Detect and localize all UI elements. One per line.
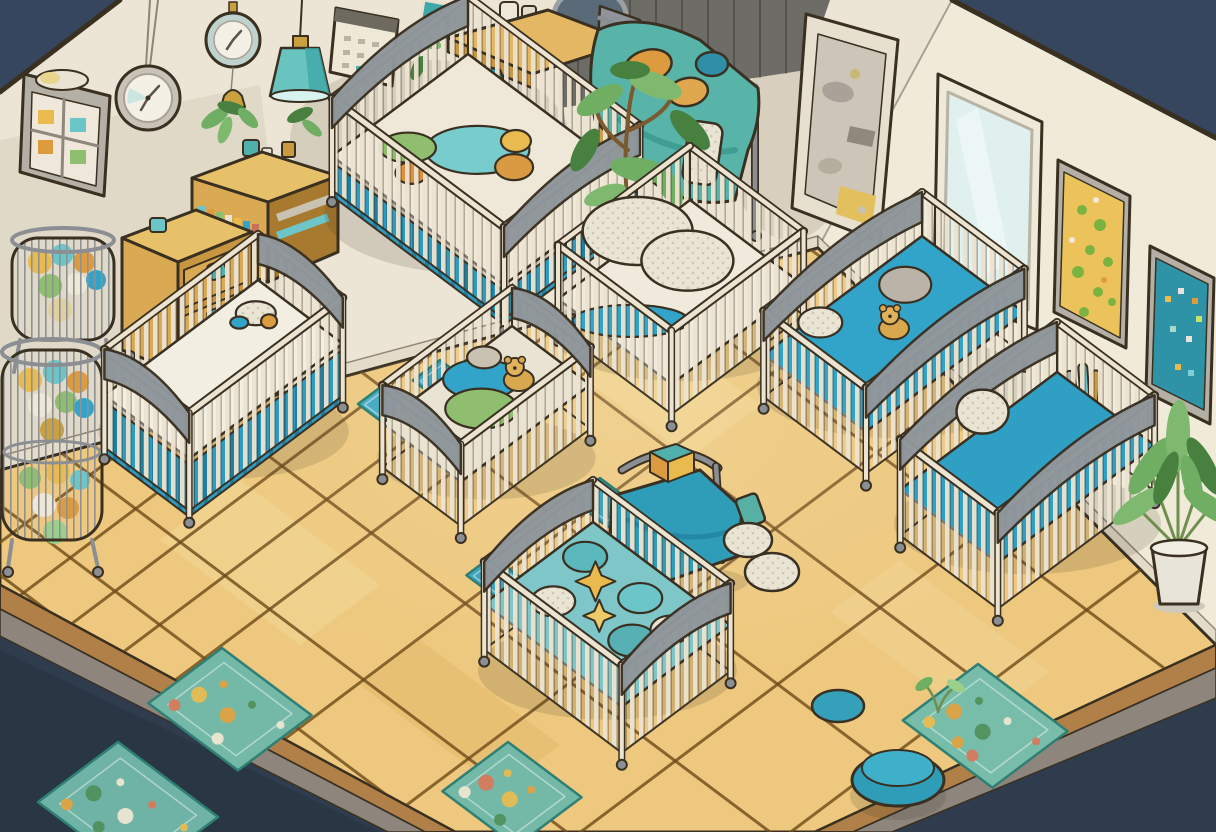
crib-caster	[617, 760, 627, 770]
rug-motif	[478, 775, 494, 791]
crib-item	[230, 317, 248, 329]
rug-motif	[169, 699, 181, 711]
rug-motif	[459, 786, 471, 798]
crib-caster	[99, 454, 109, 464]
rug-motif	[277, 721, 285, 729]
crib-caster	[667, 421, 677, 431]
crib-caster	[895, 543, 905, 553]
rug-motif	[975, 697, 983, 705]
crib-item	[618, 583, 662, 613]
crib-caster	[585, 436, 595, 446]
crib-caster	[759, 404, 769, 414]
rug-motif	[504, 769, 512, 777]
nursery-scene	[0, 0, 1216, 832]
rug-motif	[946, 703, 962, 719]
rug-motif	[220, 680, 228, 688]
plant-pot-gold	[282, 142, 295, 157]
rug-motif	[116, 778, 124, 786]
leaning-poster	[792, 14, 898, 242]
crib-caster	[377, 474, 387, 484]
rug-motif	[220, 707, 236, 723]
rug-motif	[212, 733, 224, 745]
crib-drape-blanket	[957, 390, 1009, 434]
rug-motif	[86, 785, 102, 801]
rug-motif	[191, 687, 207, 703]
crib-drape-blanket	[641, 231, 733, 291]
rug-motif	[502, 791, 518, 807]
rug-motif	[494, 814, 506, 826]
rug-motif	[1004, 717, 1012, 725]
rug-motif	[923, 716, 935, 728]
teal-cushion	[812, 690, 864, 722]
rug-motif	[527, 786, 535, 794]
crib-item	[798, 308, 842, 338]
crib-caster	[993, 616, 1003, 626]
rug-motif	[952, 736, 964, 748]
crib-caster	[861, 481, 871, 491]
crib-caster	[327, 197, 337, 207]
nursery-illustration	[0, 0, 1216, 832]
crib-caster	[479, 657, 489, 667]
rug-motif	[117, 808, 133, 824]
rug-motif	[148, 801, 156, 809]
crib-caster	[456, 533, 466, 543]
crib-item	[495, 154, 533, 180]
crib-caster	[338, 403, 348, 413]
rug-motif	[975, 724, 991, 740]
rug-motif	[1032, 737, 1040, 745]
bed-pillow-teal	[696, 52, 728, 76]
crib-caster	[726, 678, 736, 688]
rug-motif	[61, 798, 73, 810]
crib-item	[879, 267, 931, 303]
rug-motif	[180, 824, 188, 832]
crib-item	[501, 130, 531, 152]
rug-motif	[248, 701, 256, 709]
crib-item	[261, 314, 277, 328]
crib-item	[467, 346, 501, 368]
crib-caster	[184, 518, 194, 528]
crib-item	[563, 542, 607, 572]
rug-motif	[966, 750, 978, 762]
